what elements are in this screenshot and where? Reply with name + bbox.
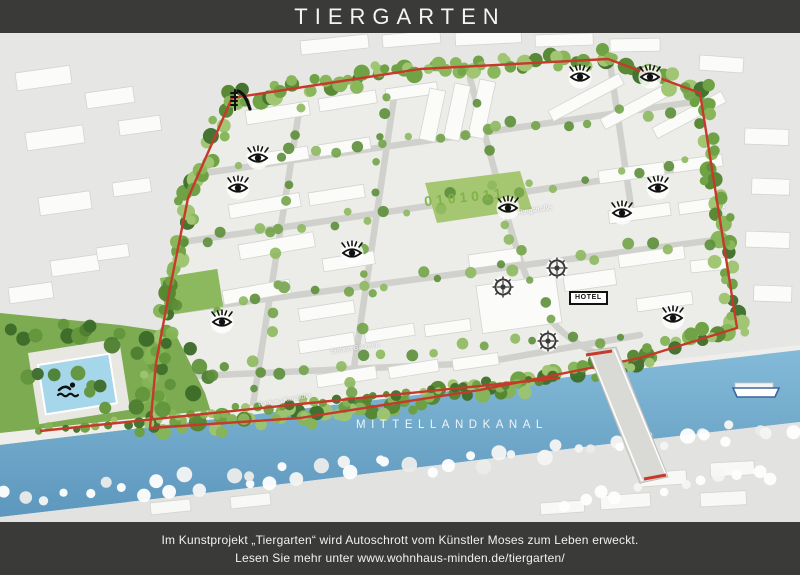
poster: TIERGARTEN bbox=[0, 0, 800, 575]
wheel-icon[interactable] bbox=[492, 276, 514, 298]
wheel-icon[interactable] bbox=[537, 330, 559, 352]
canal-name-label: MITTELLANDKANAL bbox=[356, 419, 548, 431]
eye-icon[interactable] bbox=[211, 310, 234, 334]
caption-bar: Im Kunstprojekt „Tiergarten“ wird Autosc… bbox=[0, 522, 800, 575]
wheel-icon[interactable] bbox=[546, 257, 568, 279]
eye-icon[interactable] bbox=[611, 201, 634, 225]
page-title: TIERGARTEN bbox=[294, 4, 505, 30]
eye-icon[interactable] bbox=[341, 241, 364, 265]
caption-line-1: Im Kunstprojekt „Tiergarten“ wird Autosc… bbox=[161, 533, 638, 547]
eye-icon[interactable] bbox=[569, 65, 592, 89]
canal-ship bbox=[733, 383, 779, 397]
hotel-badge: HOTEL bbox=[569, 291, 608, 305]
eye-icon[interactable] bbox=[247, 146, 270, 170]
caption-line-2: Lesen Sie mehr unter www.wohnhaus-minden… bbox=[235, 551, 565, 565]
eye-icon[interactable] bbox=[639, 65, 662, 89]
eye-icon[interactable] bbox=[227, 176, 250, 200]
title-bar: TIERGARTEN bbox=[0, 0, 800, 33]
eye-icon[interactable] bbox=[647, 176, 670, 200]
aerial-map bbox=[0, 33, 800, 522]
map-canvas: MITTELLANDKANAL HOTEL 0101011 Ringstraße… bbox=[0, 33, 800, 522]
eye-icon[interactable] bbox=[662, 306, 685, 330]
